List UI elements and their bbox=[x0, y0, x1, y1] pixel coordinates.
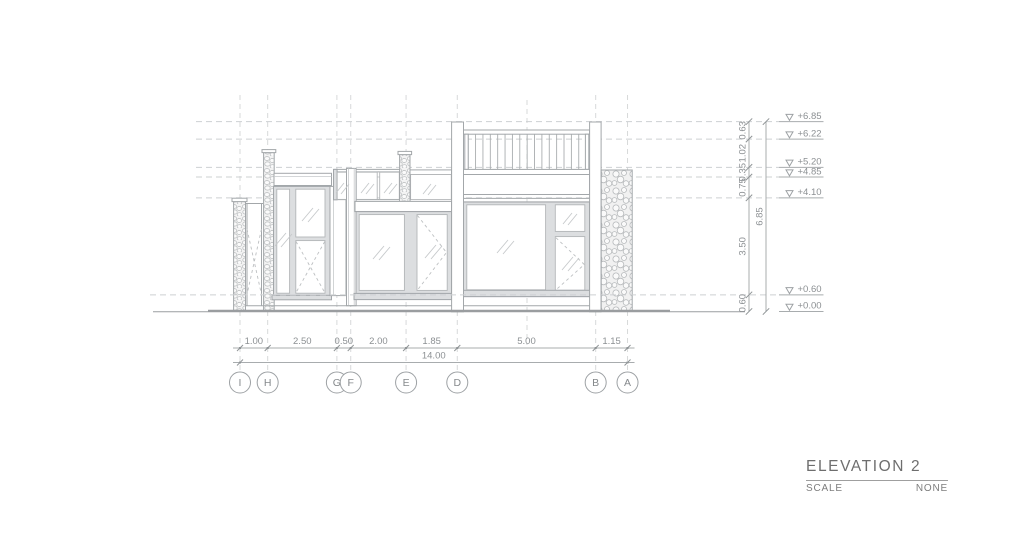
horizontal-dim-label: 1.00 bbox=[245, 336, 264, 347]
grid-bubble-label: F bbox=[348, 377, 354, 389]
level-marker-+0.60: +0.60 bbox=[779, 284, 824, 295]
clerestory-header-e-d bbox=[410, 170, 452, 175]
grid-bubble-F: F bbox=[340, 372, 361, 393]
grid-bubble-E: E bbox=[396, 372, 417, 393]
grid-bubble-H: H bbox=[257, 372, 278, 393]
elevation-sheet: { "title_block": { "title": "ELEVATION 2… bbox=[0, 0, 1024, 534]
grid-bubble-label: B bbox=[592, 377, 599, 389]
drawing-title: ELEVATION 2 bbox=[806, 458, 948, 476]
stone-pier-e bbox=[398, 151, 412, 201]
grid-bubble-label: D bbox=[453, 377, 461, 389]
scale-value: NONE bbox=[916, 483, 948, 494]
grid-bubble-label: H bbox=[264, 377, 272, 389]
window-left-sill bbox=[272, 295, 332, 300]
level-marker-+4.85: +4.85 bbox=[779, 166, 824, 177]
horizontal-dim-label: 0.50 bbox=[335, 336, 354, 347]
vertical-dim-label: 1.02 bbox=[738, 144, 749, 163]
vertical-dim-label: 0.63 bbox=[738, 121, 749, 140]
railing-bottom-rail bbox=[464, 169, 590, 174]
window-right bbox=[462, 202, 591, 297]
horizontal-dim-label: 2.50 bbox=[293, 336, 312, 347]
horizontal-dim-label: 5.00 bbox=[517, 336, 536, 347]
level-label: +0.00 bbox=[798, 301, 822, 312]
horizontal-dim-label: 1.85 bbox=[422, 336, 441, 347]
level-marker-+4.10: +4.10 bbox=[779, 187, 824, 198]
level-label: +0.60 bbox=[798, 284, 822, 295]
stone-wall-right bbox=[601, 170, 632, 312]
window-middle-sill bbox=[354, 293, 453, 299]
level-label: +4.10 bbox=[798, 187, 822, 198]
overall-vertical-dim-label: 6.85 bbox=[755, 207, 766, 226]
pier-f bbox=[347, 168, 357, 305]
railing-post-left bbox=[465, 134, 468, 169]
level-label: +4.85 bbox=[798, 166, 822, 177]
level-triangle-icon bbox=[786, 160, 793, 166]
level-label: +6.22 bbox=[798, 128, 822, 139]
scale-label: SCALE bbox=[806, 483, 843, 494]
overall-horizontal-dim-label: 14.00 bbox=[422, 351, 446, 362]
wall-strip-g bbox=[330, 186, 347, 295]
level-triangle-icon bbox=[786, 170, 793, 176]
level-triangle-icon bbox=[786, 191, 793, 197]
level-markers: +6.85+6.22+5.20+4.85+4.10+0.60+0.00 bbox=[779, 111, 824, 312]
title-rule bbox=[806, 480, 948, 481]
column-b bbox=[590, 122, 602, 312]
building-elevation bbox=[153, 122, 745, 312]
railing-slats bbox=[468, 134, 579, 169]
grid-bubble-B: B bbox=[585, 372, 606, 393]
window-right-sill bbox=[462, 290, 591, 296]
level-triangle-icon bbox=[786, 132, 793, 138]
level-marker-+6.22: +6.22 bbox=[779, 128, 824, 139]
title-block: ELEVATION 2 SCALE NONE bbox=[806, 458, 948, 494]
railing-post-right bbox=[585, 134, 588, 169]
level-triangle-icon bbox=[786, 304, 793, 310]
header-band-middle bbox=[355, 201, 452, 211]
vertical-dim-label: 0.75 bbox=[738, 178, 749, 197]
grid-bubble-A: A bbox=[617, 372, 638, 393]
grid-bubble-label: G bbox=[333, 377, 341, 389]
grid-bubble-D: D bbox=[447, 372, 468, 393]
column-d bbox=[452, 122, 464, 312]
level-label: +6.85 bbox=[798, 111, 822, 122]
level-marker-+6.85: +6.85 bbox=[779, 111, 824, 122]
horizontal-dim-label: 1.15 bbox=[602, 336, 621, 347]
level-marker-+0.00: +0.00 bbox=[779, 301, 824, 312]
grid-bubble-label: A bbox=[624, 377, 631, 389]
clerestory-post-g bbox=[334, 169, 338, 199]
vertical-dimensions: 0.631.020.350.753.500.606.85 bbox=[738, 118, 770, 314]
elevation-drawing: +6.85+6.22+5.20+4.85+4.10+0.60+0.00 0.63… bbox=[0, 0, 1024, 534]
entrance-porch bbox=[232, 198, 263, 311]
grid-bubble-label: I bbox=[239, 377, 242, 389]
grid-bubble-I: I bbox=[230, 372, 251, 393]
grid-bubbles: IHGFEDBA bbox=[230, 372, 639, 393]
stone-pier-i-cap bbox=[232, 198, 247, 201]
vertical-dim-label: 3.50 bbox=[738, 237, 749, 256]
grid-bubble-label: E bbox=[403, 377, 410, 389]
horizontal-dimensions: 1.002.500.502.001.855.001.1514.00 bbox=[233, 336, 635, 366]
level-triangle-icon bbox=[786, 288, 793, 294]
door-swing-dashed-x bbox=[247, 229, 262, 295]
level-triangle-icon bbox=[786, 114, 793, 120]
horizontal-dim-label: 2.00 bbox=[369, 336, 388, 347]
left-roof-band bbox=[274, 173, 332, 185]
vertical-dim-label: 0.60 bbox=[738, 294, 749, 313]
window-left bbox=[272, 186, 332, 299]
railing-top-rail bbox=[464, 130, 590, 134]
